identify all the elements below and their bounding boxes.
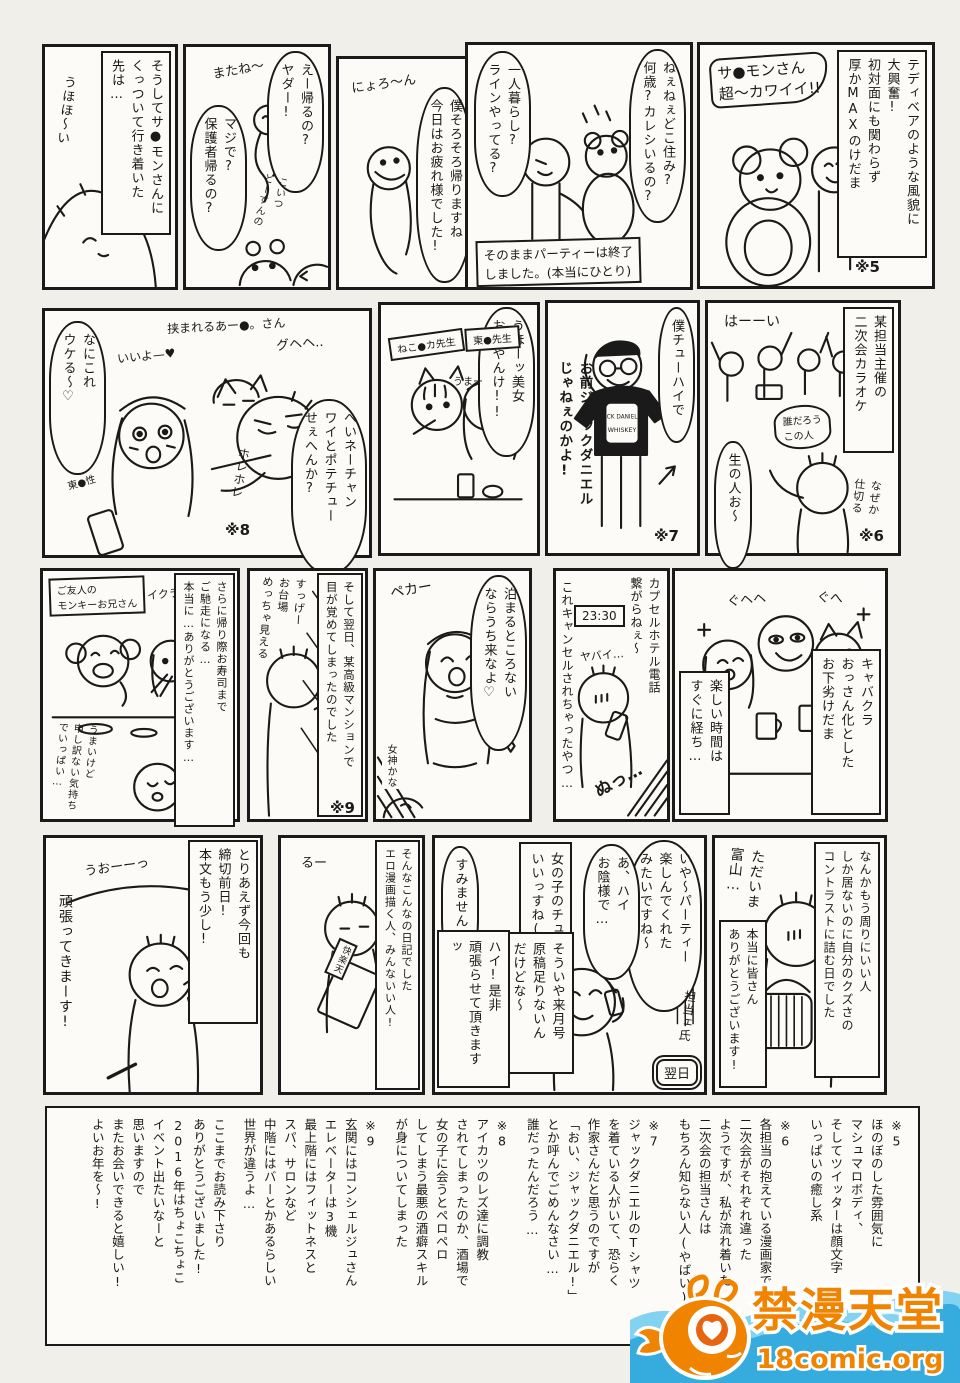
footnote-mark-6: ※6: [859, 527, 884, 545]
narration-box: そんなこんなの日記でした エロ漫画描く人、みんないい人!: [375, 840, 420, 1090]
narration-box: そうしてサ●モンさんに くっついて行き着いた 先は…: [101, 51, 172, 235]
speech-bubble-nama: 生の人お〜: [714, 441, 752, 569]
shout-jack-daniel: お前ジャックダニエル じゃねぇのかよ!: [554, 361, 595, 537]
narration-box-thanks: 本当に皆さん ありがとうございます!: [719, 920, 767, 1088]
sfx-haai: はーーい: [724, 311, 780, 331]
caption-monkey-bro: ご友人の モンキーお兄さん: [48, 575, 145, 616]
panel-karaoke: 某担当主催の 二次会カラオケ はーーい 誰だろう この人 生の人お〜 なぜか 仕…: [705, 300, 901, 556]
sfx-ru: るー: [301, 852, 327, 871]
sfx-guhehe-left: ぐヘヘ: [726, 587, 767, 609]
phone-clock-display: 23:30: [574, 605, 625, 627]
speech-bubble-leaving: えー帰るの? ヤダー!: [267, 51, 324, 193]
narration-capsule: カプセルホテル電話 繋がらねぇ〜: [627, 577, 663, 694]
narration-box: テディベアのような風貌に 大興奮! 初対面にも関わらず 厚かMAXのけだま: [837, 50, 927, 258]
sfx-uma: うまー: [453, 373, 483, 388]
speech-box-manuscript: そういや来月号 原稿足りないん だけどな〜: [501, 932, 574, 1074]
panel-snake: にょろ〜ん 僕そろそろ帰りますね 今日はお疲れ様でした!: [336, 56, 478, 290]
hand-note-megami: 女神かな: [382, 743, 399, 789]
panel-tagalong: そうしてサ●モンさんに くっついて行き着いた 先は… うほほ〜い: [42, 44, 178, 290]
shirt-label-line2: WHISKEY: [608, 427, 637, 434]
speech-bubble-potechu: へいネーチャン ワイとポテチュー せぇへんか?: [291, 399, 368, 575]
sfx-nazeka: なぜか 仕切る: [847, 477, 884, 516]
sfx-guhehe: グヘヘ..: [275, 331, 324, 354]
footnote-mark-7: ※7: [654, 527, 679, 545]
panel-monkey: ご友人の モンキーお兄さん イクラー♥ さらに帰り際お寿司まで ご馳走になる… …: [40, 568, 240, 822]
panel-beauties: うほーッ美女 おるやんけ!! ねこ●カ先生 東●先生 うまー: [378, 302, 540, 556]
narration-box-cabaret: キャバクラ おっさん化とした お下劣けだま: [811, 649, 882, 815]
speech-bubble-okage: あ、ハイ お陰様で…: [583, 844, 640, 980]
panel-diary-end: そんなこんなの日記でした エロ漫画描く人、みんないい人! るー 快楽天: [278, 835, 425, 1095]
panel-capsule: カプセルホテル電話 繋がらねぇ〜 23:30 ヤバイ… これキャンセルされちゃっ…: [553, 568, 670, 822]
panel-goddess: 泊まるところない ならうち来なよ♡ ペカー 女神かな: [373, 568, 532, 822]
speech-ganbatte: 頑張ってきまーす!: [54, 894, 75, 1031]
watermark-title: 禁漫天堂: [752, 1283, 944, 1337]
watermark-url: 18comic.org: [757, 1344, 944, 1375]
narration-box: とりあえず今回も 締切前日! 本文もう少し!: [188, 840, 259, 1024]
speech-bubble-ukeru: なにこれ ウケる〜♡: [49, 321, 106, 475]
caption-party-over: そのままパーティーは終了 しました。(本当にひとり): [475, 237, 641, 287]
narration-box: なんかもう周りにいい人 しか居ないのに自分のクズさの コントラストに詰む日でした: [814, 842, 880, 1078]
panel-deadline: とりあえず今回も 締切前日! 本文もう少し! うおーーっ 頑張ってきまーす!: [43, 835, 263, 1095]
caption-next-day: 翌日: [656, 1059, 698, 1086]
narration-box-time: 楽しい時間は すぐに経ち…: [679, 671, 730, 815]
speech-box-hai: ハイ!是非 頑張らせて頂きますッ: [437, 930, 510, 1088]
watermark-banner: 禁漫天堂 18comic.org: [630, 1268, 960, 1383]
narration-box: さらに帰り際お寿司まで ご馳走になる… 本当に…ありがとうございます…: [174, 573, 236, 827]
shirt-label-line1: JACK DANIEL'S: [600, 414, 643, 420]
speech-bubble-where-live: ねぇねぇどこ住み? 何歳?カレシいるの?: [629, 49, 686, 223]
speech-bubble-stay-over: 泊まるところない ならうち来なよ♡: [470, 575, 527, 751]
panel-cabaret: キャバクラ おっさん化とした お下劣けだま 楽しい時間は すぐに経ち… ぐヘヘ …: [672, 568, 888, 822]
panel-toyama: なんかもう周りにいい人 しか居ないのに自分のクズさの コントラストに詰む日でした…: [712, 835, 887, 1095]
panel-odaiba: すっげー お台場 めっちゃ見える そして翌日、某高級マンションで 目が覚めてしま…: [247, 568, 368, 822]
sfx-guhe-right: ぐへ: [816, 586, 843, 607]
footnote-mark-8: ※8: [225, 521, 250, 539]
speech-bubble-majide: マジで? 保護者帰るの?: [190, 105, 247, 251]
label-tou-sensei: 東●先生: [464, 325, 520, 352]
panel-jack-daniel: JACK DANIEL'S WHISKEY 僕チューハイで お前ジャックダニエル…: [545, 300, 700, 556]
watermark-graphic: 禁漫天堂 18comic.org: [630, 1268, 960, 1383]
footnote-mark-5: ※5: [855, 258, 880, 276]
closing-message: ここまでお読み下さり ありがとうございました! 2016年はちょこちょこ イベン…: [87, 1118, 229, 1334]
footnote-mark-9: ※9: [330, 799, 355, 817]
hand-note-tadaima: ただいま 富山…: [720, 846, 768, 910]
footnote-9: ※9 玄関にはコンシェルジュさん エレベーターは3機 最上階にはフィットネスと …: [238, 1118, 380, 1334]
panel-leaving: えー帰るの? ヤダー! またね〜 マジで? 保護者帰るの? こいつ どーすんの: [183, 44, 331, 290]
speech-bubble-line: 一人暮らし? ラインやってる?: [474, 51, 531, 197]
manga-page: そうしてサ●モンさんに くっついて行き着いた 先は… うほほ〜い えー帰るの? …: [0, 0, 960, 1383]
narration-box: 某担当主催の 二次会カラオケ: [843, 307, 894, 453]
speech-bubble-chuhai: 僕チューハイで: [658, 307, 696, 443]
narration-cancelled: これキャンセルされちゃったやつ…: [558, 581, 576, 791]
narration-box: そして翌日、某高級マンションで 目が覚めてしまったのでした: [317, 573, 364, 817]
footnote-8: ※8 アイカツのレズ達に調教 されてしまったのか、酒場で 女の子に会うとペロペロ…: [390, 1118, 512, 1334]
panel-editor: いや〜パーティー 楽しんでくれた みたいですね〜 あ、ハイ お陰様で… 女の子の…: [432, 835, 707, 1095]
panel-party-end: ねぇねぇどこ住み? 何歳?カレシいるの? 一人暮らし? ラインやってる? そのま…: [465, 42, 693, 290]
panel-potechu: 挟まれるあー●。さん なにこれ ウケる〜♡ いいよ—♥ グヘヘ.. 東●性 ホレ…: [42, 308, 372, 558]
hand-note-umai: うまいけど 申し訳ない気持ち でいっぱい…: [47, 721, 99, 813]
hand-note-odaiba: すっげー お台場 めっちゃ見える: [253, 575, 308, 662]
panel-teddy: テディベアのような風貌に 大興奮! 初対面にも関わらず 厚かMAXのけだま サ●…: [697, 42, 935, 289]
